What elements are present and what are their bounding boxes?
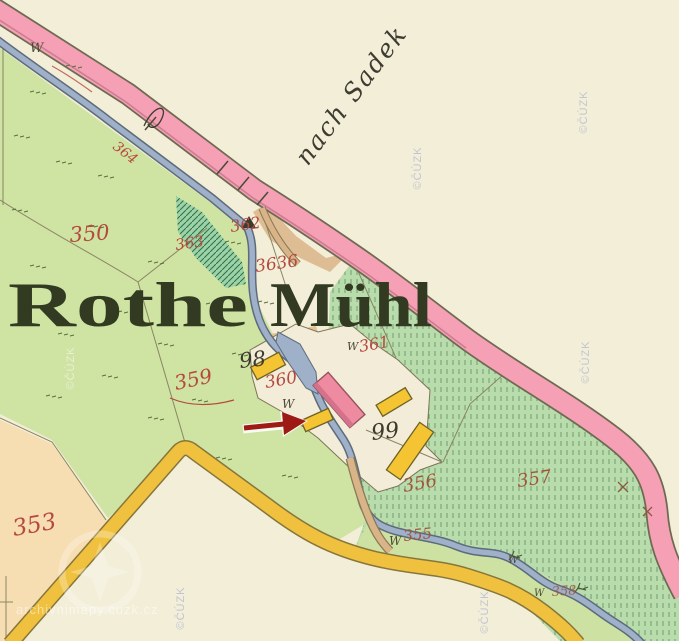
parcel-label-358: 358 [551,583,577,600]
copyright-watermark: ©ČÚZK [478,590,491,633]
historic-cadastral-map[interactable]: W W W W W W 350 353 355 356 357 358 359 … [0,0,679,641]
place-title: Rothe Mühl [8,270,432,340]
meadow-symbol: W [282,397,296,411]
site-watermark: archivnimapy.cuzk.cz [16,602,159,617]
place-title-part2: Mühl [270,270,432,340]
building-label-99: 99 [370,418,400,446]
meadow-symbol: W [508,555,519,566]
copyright-watermark: ©ČÚZK [64,346,77,389]
copyright-watermark: ©ČÚZK [579,340,592,383]
place-title-part1: Rothe [8,270,248,340]
map-canvas: W W W W W W 350 353 355 356 357 358 359 … [0,0,679,641]
copyright-watermark: ©ČÚZK [174,586,187,629]
building-label-98: 98 [238,346,267,373]
copyright-watermark: ©ČÚZK [577,90,590,133]
meadow-symbol: W [534,588,545,599]
parcel-label-350: 350 [69,220,111,247]
compass-logo-watermark [62,534,138,610]
meadow-symbol: W [389,534,403,548]
copyright-watermark: ©ČÚZK [411,146,424,189]
meadow-symbol: W [30,41,45,56]
parcel-label-355: 355 [403,524,433,545]
